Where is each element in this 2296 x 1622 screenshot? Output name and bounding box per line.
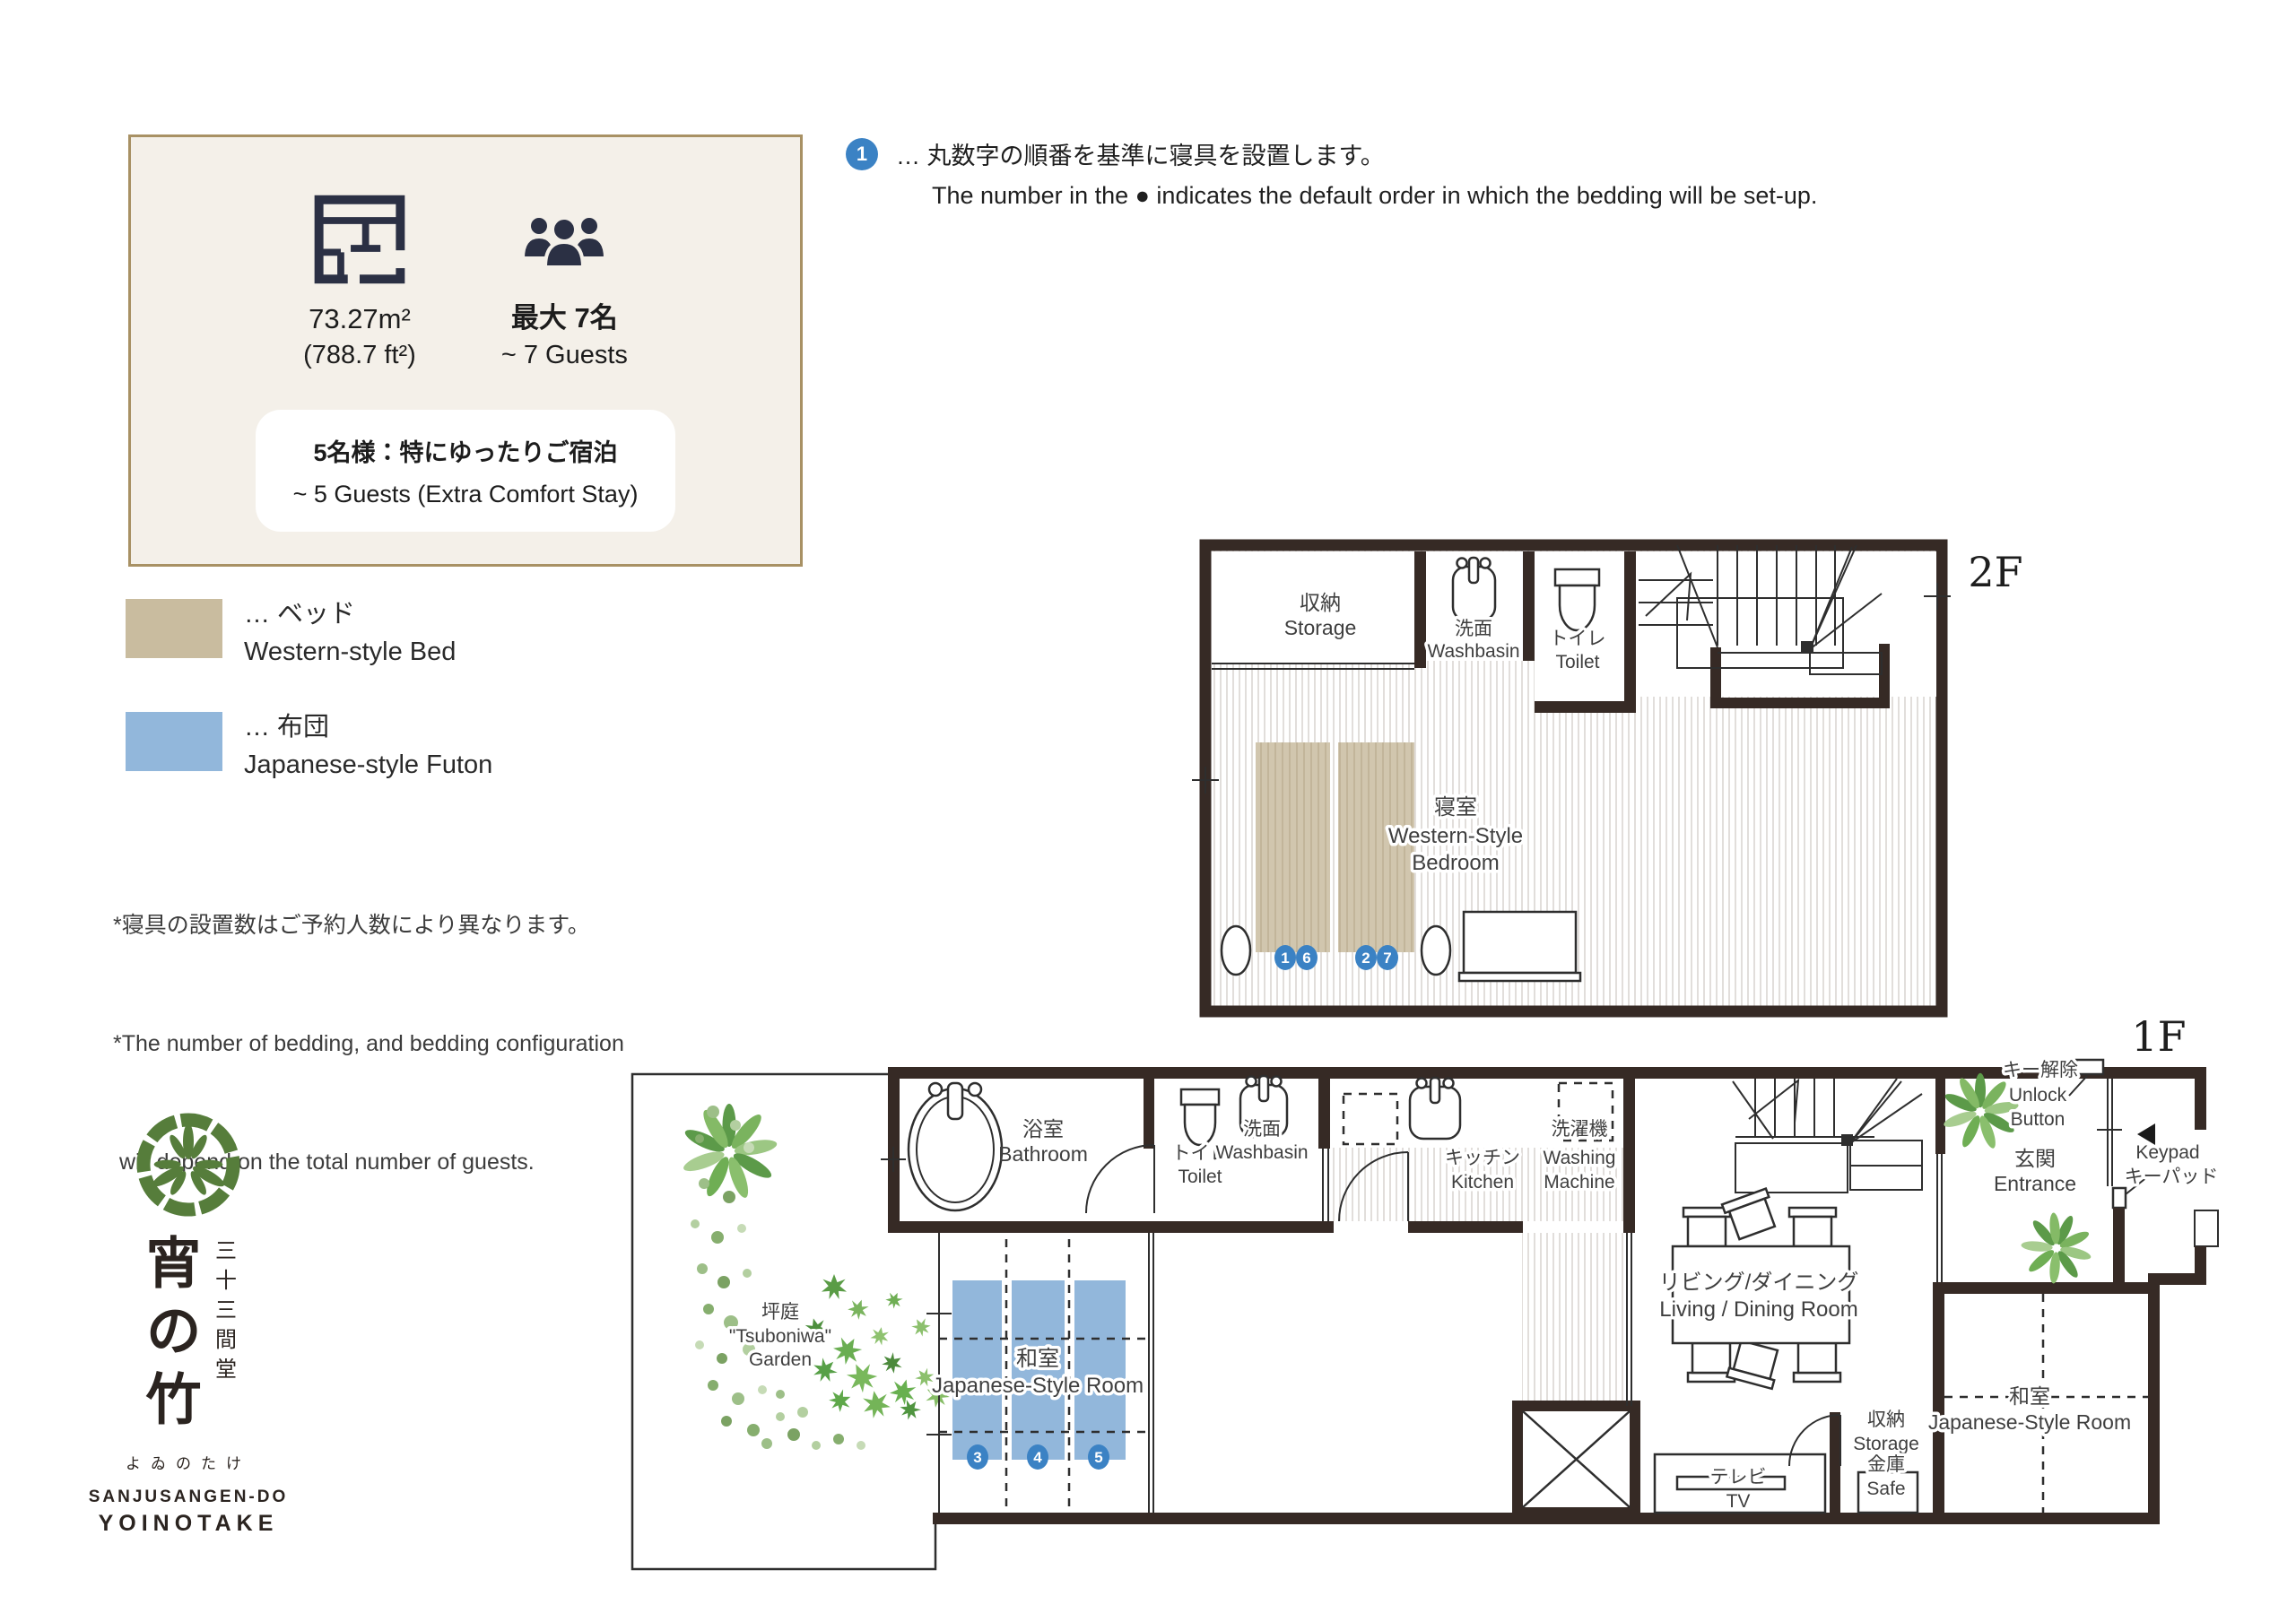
legend-futon-jp: … 布団: [244, 708, 492, 746]
logo-en-line2: YOINOTAKE: [99, 1511, 279, 1537]
cabinet-icon: [1459, 912, 1580, 981]
property-logo: 宵の竹 三十三間堂 よゐのたけ SANJUSANGEN-DO YOINOTAKE: [76, 1110, 300, 1537]
closet-label-en: Storage: [1853, 1434, 1919, 1454]
garden-label-jp: 坪庭: [761, 1302, 799, 1323]
closet-label-jp: 収納: [1867, 1409, 1905, 1430]
bathroom-label-jp: 浴室: [1022, 1117, 1064, 1141]
comfort-en: ~ 5 Guests (Extra Comfort Stay): [293, 481, 639, 508]
bed-swatch: [126, 599, 222, 658]
bedding-note-en: The number in the ● indicates the defaul…: [932, 182, 1817, 210]
info-box: 73.27m² (788.7 ft²) 最大 7名 ~ 7 Guests 5名様…: [128, 134, 803, 567]
bamboo-crest-icon: [134, 1110, 243, 1219]
jroom2-wall-top: [1933, 1282, 2160, 1294]
floor-label-1f: 1F: [2131, 1012, 2186, 1061]
jroom-label-jp: 和室: [1016, 1347, 1059, 1371]
keypad-label-en: Keypad: [2135, 1142, 2199, 1163]
washbasin-label-jp-2f: 洗面: [1455, 619, 1492, 639]
toilet-label-en-2f: Toilet: [1555, 652, 1599, 672]
legend: … ベッド Western-style Bed … 布団 Japanese-st…: [126, 599, 492, 825]
bedroom-label-jp: 寝室: [1434, 795, 1477, 820]
floorplan-sheet: 73.27m² (788.7 ft²) 最大 7名 ~ 7 Guests 5名様…: [0, 0, 2296, 1622]
logo-kana: よゐのたけ: [126, 1451, 251, 1473]
bathtub-icon: [909, 1083, 1002, 1210]
svg-text:3: 3: [973, 1449, 981, 1466]
svg-text:4: 4: [1033, 1449, 1042, 1466]
legend-bed-en: Western-style Bed: [244, 633, 456, 671]
bedroom-label-en1: Western-Style: [1388, 824, 1523, 848]
futon-swatch: [126, 712, 222, 771]
floorplan-icon: [309, 193, 410, 286]
number-badge-icon: 1: [846, 138, 878, 170]
storage-label-en-2f: Storage: [1284, 616, 1357, 639]
legend-bed: … ベッド Western-style Bed: [126, 599, 492, 671]
logo-vertical-title: 三十三間堂: [209, 1239, 240, 1387]
washbasin-icon: [1453, 558, 1495, 620]
void-shaft: [1518, 1406, 1635, 1513]
legend-futon: … 布団 Japanese-style Futon: [126, 712, 492, 784]
keypad-icon: [2113, 1188, 2126, 1208]
kitchen-label-jp: キッチン: [1445, 1148, 1520, 1168]
legend-futon-en: Japanese-style Futon: [244, 746, 492, 784]
stool-icon: [1222, 926, 1250, 975]
entrance-plant: [1942, 1073, 2019, 1150]
kitchen-counter: [1344, 1094, 1397, 1144]
tv-label-jp: テレビ: [1710, 1467, 1767, 1488]
logo-main-chars: 宵の竹: [137, 1234, 200, 1438]
disclaimer-line2: *The number of bedding, and bedding conf…: [113, 1024, 624, 1063]
bed-1: [1256, 742, 1330, 952]
svg-text:5: 5: [1094, 1449, 1102, 1466]
toilet-label-en-1f: Toilet: [1178, 1167, 1222, 1187]
garden-foliage: [682, 1104, 953, 1450]
corridor-floor: [1522, 1233, 1623, 1406]
safe-label-en: Safe: [1866, 1479, 1905, 1499]
area-m2: 73.27m²: [303, 303, 416, 335]
legend-bed-jp: … ベッド: [244, 595, 456, 633]
washbasin-label-jp-1f: 洗面: [1243, 1119, 1281, 1140]
stool-icon: [1422, 926, 1450, 975]
toilet-icon-1f: [1181, 1089, 1219, 1145]
svg-text:6: 6: [1302, 950, 1310, 967]
washer-label-en2: Machine: [1544, 1172, 1614, 1193]
unlock-label-en1: Unlock: [2009, 1085, 2067, 1106]
capacity-en: ~ 7 Guests: [501, 341, 628, 370]
washbasin-label-en-2f: Washbasin: [1427, 641, 1519, 662]
bathroom-door: [1086, 1145, 1154, 1213]
logo-en-line1: SANJUSANGEN-DO: [89, 1488, 289, 1507]
bedroom-label-en2: Bedroom: [1412, 851, 1499, 875]
floor-label-2f: 2F: [1968, 548, 2022, 596]
kitchen-sink-icon: [1410, 1078, 1460, 1139]
closet-wall: [1830, 1412, 1840, 1513]
area-info: 73.27m² (788.7 ft²): [303, 193, 416, 370]
bedding-note-jp: … 丸数字の順番を基準に寝具を設置します。: [896, 136, 1817, 171]
garden-label-en2: Garden: [749, 1349, 812, 1370]
jroom2-label-en: Japanese-Style Room: [1928, 1410, 2131, 1434]
area-ft2: (788.7 ft²): [303, 341, 416, 370]
washbasin-label-en-1f: Washbasin: [1215, 1142, 1308, 1163]
guests-icon: [512, 203, 616, 278]
floor-plan-1f: 坪庭 "Tsuboniwa" Garden: [623, 1004, 2296, 1622]
wall-bottom-1f: [933, 1513, 2160, 1524]
keypad-label-jp: キーパッド: [2125, 1167, 2219, 1187]
comfort-callout: 5名様：特にゆったりご宿泊 ~ 5 Guests (Extra Comfort …: [256, 410, 676, 532]
living-label-jp: リビング/ダイニング: [1659, 1271, 1859, 1295]
tv-label-en: TV: [1726, 1491, 1751, 1512]
kitchen-label-en: Kitchen: [1451, 1172, 1514, 1193]
svg-text:1: 1: [1281, 950, 1289, 967]
svg-text:2: 2: [1361, 950, 1370, 967]
living-label-en: Living / Dining Room: [1659, 1297, 1857, 1322]
entrance-label-en: Entrance: [1994, 1172, 2076, 1195]
disclaimer-line1: *寝具の設置数はご予約人数により異なります。: [113, 906, 624, 945]
unlock-label-jp: キー解除: [2003, 1060, 2078, 1080]
washer-label-jp: 洗濯機: [1552, 1119, 1608, 1140]
comfort-jp: 5名様：特にゆったりご宿泊: [293, 433, 639, 468]
stairs-1f: [1733, 1079, 1922, 1193]
unlock-button-icon: [2076, 1060, 2103, 1074]
washer-label-en1: Washing: [1544, 1148, 1616, 1168]
bathroom-label-en: Bathroom: [998, 1142, 1088, 1166]
capacity-info: 最大 7名 ~ 7 Guests: [501, 203, 628, 370]
bedding-order-note: 1 … 丸数字の順番を基準に寝具を設置します。 The number in th…: [846, 136, 1817, 210]
unlock-label-en2: Button: [2011, 1109, 2066, 1130]
wall-top-entrance: [1637, 1067, 2202, 1079]
storage-label-jp-2f: 収納: [1300, 591, 1341, 614]
svg-text:7: 7: [1383, 950, 1391, 967]
floor-plan-2f: 収納 Storage 洗面 Washbasin トイレ Toilet 寝室 We…: [1188, 531, 2067, 1033]
jroom2-label-jp: 和室: [2009, 1384, 2050, 1408]
jroom-label-en: Japanese-Style Room: [932, 1374, 1144, 1398]
safe-label-jp: 金庫: [1867, 1454, 1905, 1475]
garden-label-en1: "Tsuboniwa": [729, 1326, 831, 1347]
entrance-label-jp: 玄関: [2014, 1147, 2056, 1170]
toilet-label-jp-2f: トイレ: [1550, 629, 1606, 649]
capacity-jp: 最大 7名: [501, 295, 628, 335]
entrance-plant: [2010, 1201, 2104, 1296]
